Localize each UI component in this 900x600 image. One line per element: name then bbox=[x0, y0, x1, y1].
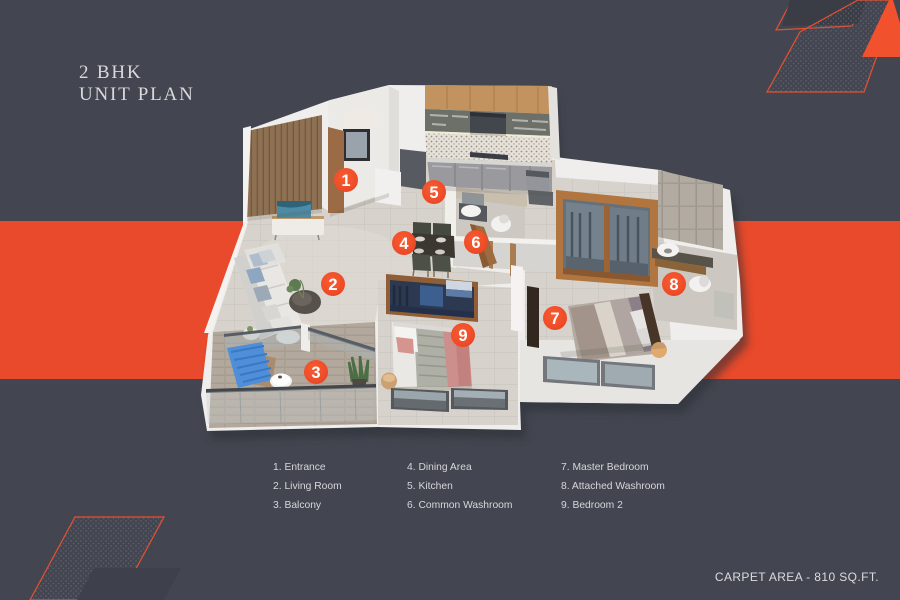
svg-text:4: 4 bbox=[399, 235, 409, 253]
svg-text:7: 7 bbox=[550, 310, 559, 328]
svg-text:8: 8 bbox=[669, 276, 678, 294]
svg-text:6: 6 bbox=[471, 234, 480, 252]
svg-text:1: 1 bbox=[341, 172, 350, 190]
svg-text:9: 9 bbox=[458, 327, 467, 345]
svg-text:5: 5 bbox=[429, 184, 438, 202]
svg-text:2: 2 bbox=[328, 276, 337, 294]
svg-text:3: 3 bbox=[311, 364, 320, 382]
